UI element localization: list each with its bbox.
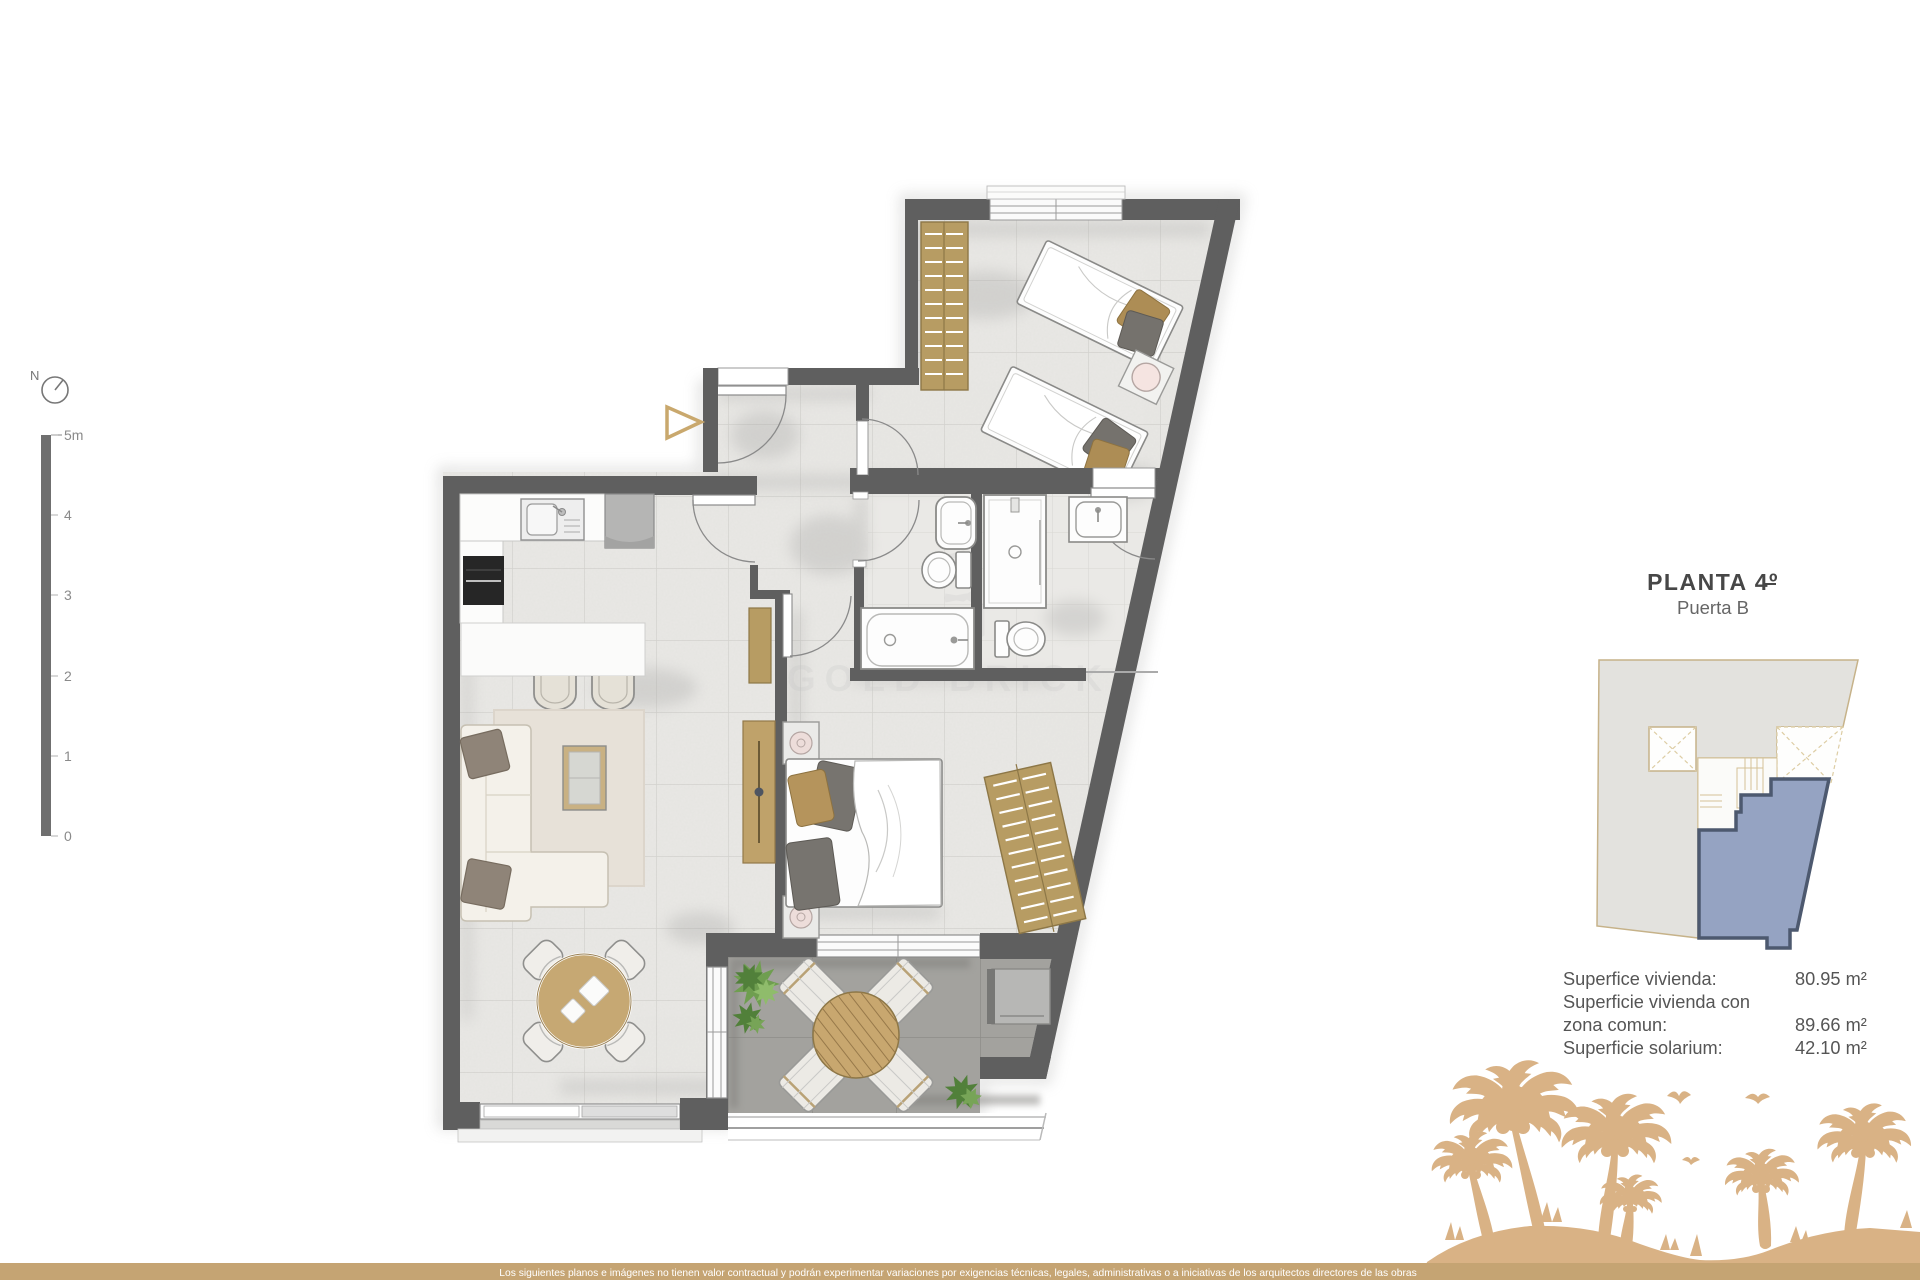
svg-text:zona comun:: zona comun:	[1563, 1015, 1667, 1035]
svg-text:0: 0	[64, 828, 72, 844]
svg-text:1: 1	[64, 748, 72, 764]
svg-text:42.10 m²: 42.10 m²	[1795, 1038, 1867, 1058]
svg-text:4: 4	[64, 507, 72, 523]
svg-text:Superficie solarium:: Superficie solarium:	[1563, 1038, 1723, 1058]
svg-text:5m: 5m	[64, 427, 83, 443]
svg-text:Superficie vivienda con: Superficie vivienda con	[1563, 992, 1750, 1012]
svg-text:PLANTA 4º: PLANTA 4º	[1647, 569, 1779, 595]
svg-text:3: 3	[64, 587, 72, 603]
svg-text:Superfice vivienda:: Superfice vivienda:	[1563, 969, 1717, 989]
svg-text:Los siguientes planos e imágen: Los siguientes planos e imágenes no tien…	[499, 1268, 1417, 1279]
svg-text:2: 2	[64, 668, 72, 684]
svg-text:Puerta B: Puerta B	[1677, 597, 1749, 618]
svg-text:89.66 m²: 89.66 m²	[1795, 1015, 1867, 1035]
svg-text:80.95 m²: 80.95 m²	[1795, 969, 1867, 989]
svg-text:N: N	[30, 368, 39, 383]
